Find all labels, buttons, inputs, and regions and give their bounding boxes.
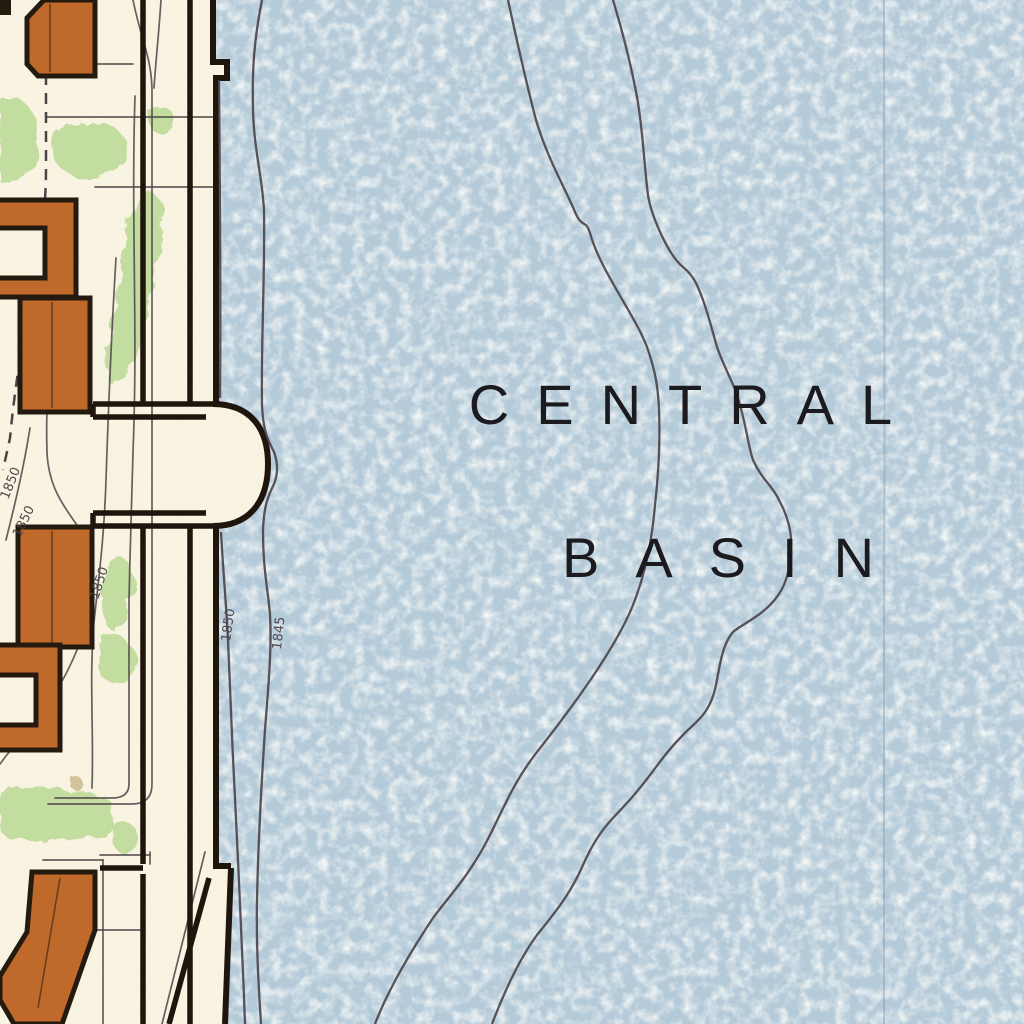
building: [27, 0, 95, 76]
building-courtyard: [0, 228, 45, 278]
building-courtyard: [0, 675, 36, 725]
scanned-topographic-map: 1850 1850 1850 1850 1845 CENTRAL BASIN: [0, 0, 1024, 1024]
map-canvas: 1850 1850 1850 1850 1845 CENTRAL BASIN: [0, 0, 1024, 1024]
building: [18, 527, 92, 647]
basin-name-line2: BASIN: [562, 526, 910, 589]
building: [20, 298, 90, 412]
building: [0, 0, 11, 15]
depth-contour: [219, 80, 220, 398]
paper-stain: [70, 776, 82, 790]
paper-fold-line: [883, 0, 884, 1024]
basin-name-line1: CENTRAL: [469, 373, 919, 436]
